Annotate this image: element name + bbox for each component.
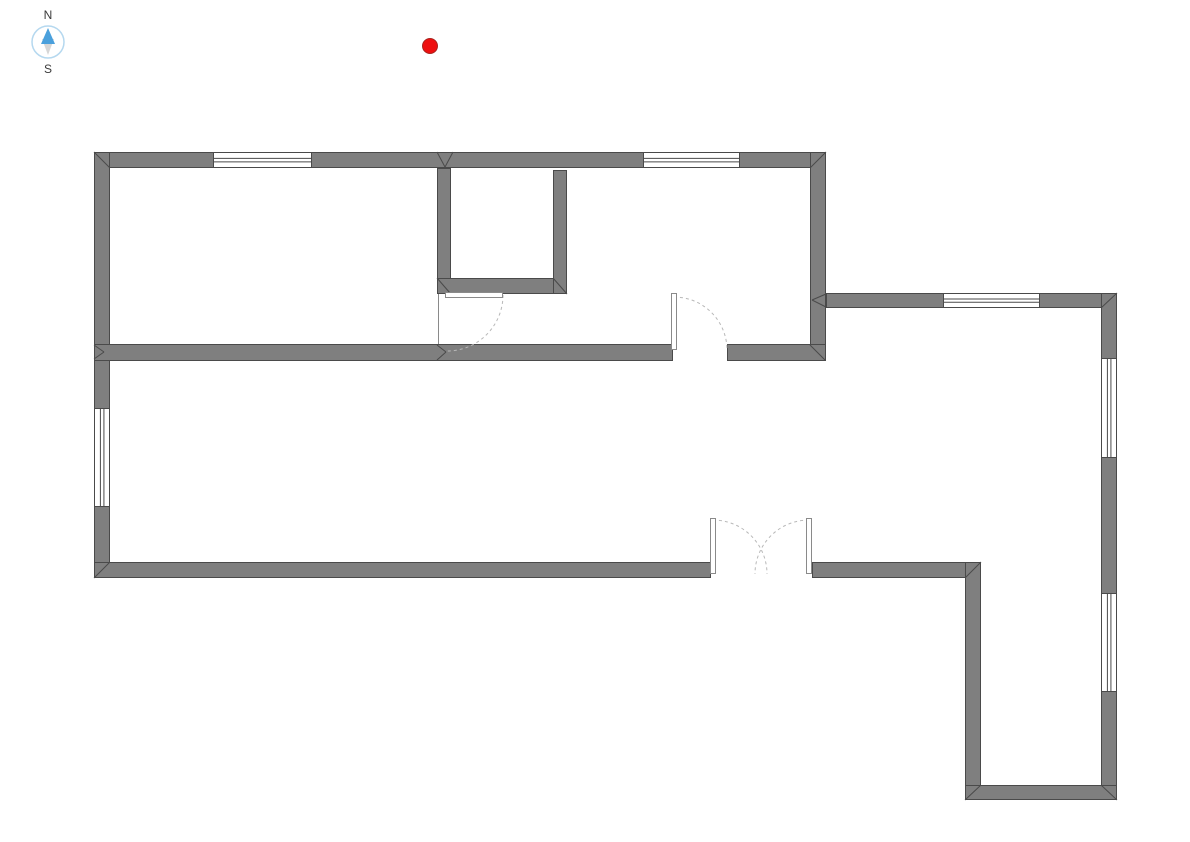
location-marker[interactable] <box>422 38 438 54</box>
wall-interior-vertical <box>438 169 451 294</box>
door-leaf-closet-room[interactable] <box>446 293 503 298</box>
doorway-bedroom[interactable] <box>672 343 727 362</box>
window-top-right <box>644 153 740 168</box>
wall-step-vertical <box>966 563 981 800</box>
wall-closet-right <box>554 171 567 294</box>
wall-closet-bottom <box>438 279 567 294</box>
compass-rose: N S <box>22 8 74 88</box>
compass-north-arrow <box>41 28 55 44</box>
window-top-left <box>214 153 312 168</box>
door-leaf-entrance-left[interactable] <box>711 519 716 574</box>
compass-north-label: N <box>22 8 74 22</box>
door-arc-bedroom <box>674 297 727 350</box>
window-left-wall <box>95 409 110 507</box>
floor-plan-canvas: N S <box>0 0 1190 842</box>
window-extension-top <box>944 294 1040 308</box>
compass-icon <box>28 22 68 62</box>
door-leaf-entrance-right[interactable] <box>807 519 812 574</box>
floor-plan-drawing <box>0 0 1190 842</box>
doorway-entrance[interactable] <box>710 561 812 579</box>
wall-exterior-bottom-main <box>95 563 981 578</box>
window-right-upper <box>1102 359 1117 458</box>
door-arc-closet-room <box>447 295 503 351</box>
compass-south-label: S <box>22 62 74 76</box>
wall-top-section-right <box>811 153 826 361</box>
door-leaf-bedroom[interactable] <box>672 294 677 350</box>
wall-exterior-bottom-right <box>966 786 1117 800</box>
wall-exterior-left <box>95 153 110 578</box>
window-right-lower <box>1102 594 1117 692</box>
